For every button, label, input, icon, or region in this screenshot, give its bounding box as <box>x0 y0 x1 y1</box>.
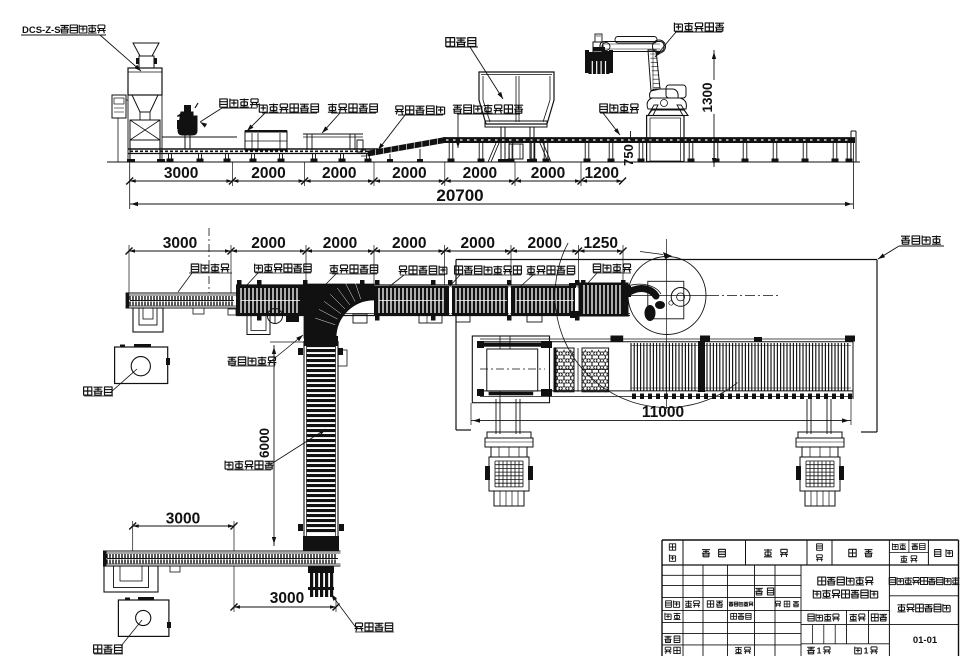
svg-text:1: 1 <box>817 645 822 655</box>
svg-text:2000: 2000 <box>461 235 495 252</box>
svg-text:1250: 1250 <box>584 235 618 252</box>
svg-text:750: 750 <box>621 144 636 166</box>
svg-text:2000: 2000 <box>392 165 426 182</box>
svg-text:2000: 2000 <box>528 235 562 252</box>
svg-text:1200: 1200 <box>585 165 619 182</box>
svg-text:2000: 2000 <box>251 235 285 252</box>
svg-text:11000: 11000 <box>642 404 684 421</box>
svg-text:2000: 2000 <box>323 235 357 252</box>
svg-text:2000: 2000 <box>531 165 565 182</box>
svg-text:1300: 1300 <box>700 82 715 112</box>
svg-text:2000: 2000 <box>322 165 356 182</box>
svg-text:3000: 3000 <box>163 235 197 252</box>
svg-text:3000: 3000 <box>270 590 304 607</box>
svg-text:3000: 3000 <box>166 511 200 528</box>
svg-text:3000: 3000 <box>164 165 198 182</box>
svg-text:20700: 20700 <box>436 186 483 205</box>
svg-text:2000: 2000 <box>463 165 497 182</box>
svg-text:1: 1 <box>864 645 869 655</box>
svg-text:2000: 2000 <box>251 165 285 182</box>
svg-text:DCS-Z-S: DCS-Z-S <box>22 25 61 36</box>
svg-text:2000: 2000 <box>392 235 426 252</box>
svg-text:6000: 6000 <box>257 428 272 458</box>
svg-text:01-01: 01-01 <box>913 635 938 646</box>
